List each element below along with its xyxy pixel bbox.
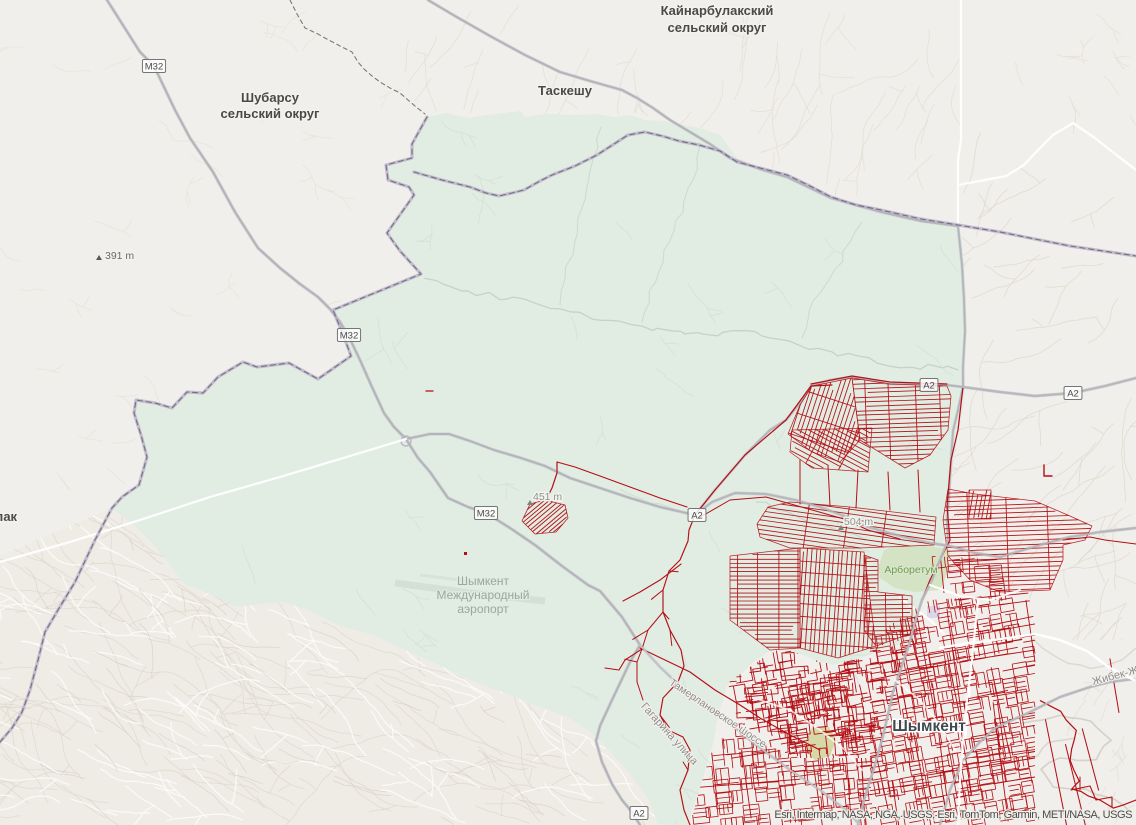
svg-text:А2: А2 [691,511,703,522]
svg-text:Таскешу: Таскешу [538,83,593,98]
svg-text:сельский округ: сельский округ [668,20,767,35]
svg-text:М32: М32 [145,62,163,73]
svg-text:391 m: 391 m [105,250,134,262]
svg-text:А2: А2 [923,381,935,392]
svg-text:451 m: 451 m [533,491,562,503]
svg-text:А2: А2 [1067,389,1079,400]
svg-text:сельский округ: сельский округ [221,106,320,121]
svg-text:А2: А2 [633,809,645,820]
svg-text:Esri, Intermap, NASA, NGA, USG: Esri, Intermap, NASA, NGA, USGS, Esri, T… [774,809,1132,821]
svg-text:Шымкент: Шымкент [892,718,966,735]
svg-text:М32: М32 [340,331,358,342]
svg-text:Арборетум: Арборетум [884,564,937,576]
svg-text:аэропорт: аэропорт [457,602,509,616]
svg-text:Кайнарбулакский: Кайнарбулакский [661,3,774,18]
svg-text:Шымкент: Шымкент [457,574,510,588]
svg-text:улак: улак [0,509,18,524]
svg-text:Шубарсу: Шубарсу [241,90,300,105]
svg-text:М32: М32 [477,509,495,520]
svg-text:Международный: Международный [436,588,529,602]
svg-text:504 m: 504 m [844,516,873,528]
